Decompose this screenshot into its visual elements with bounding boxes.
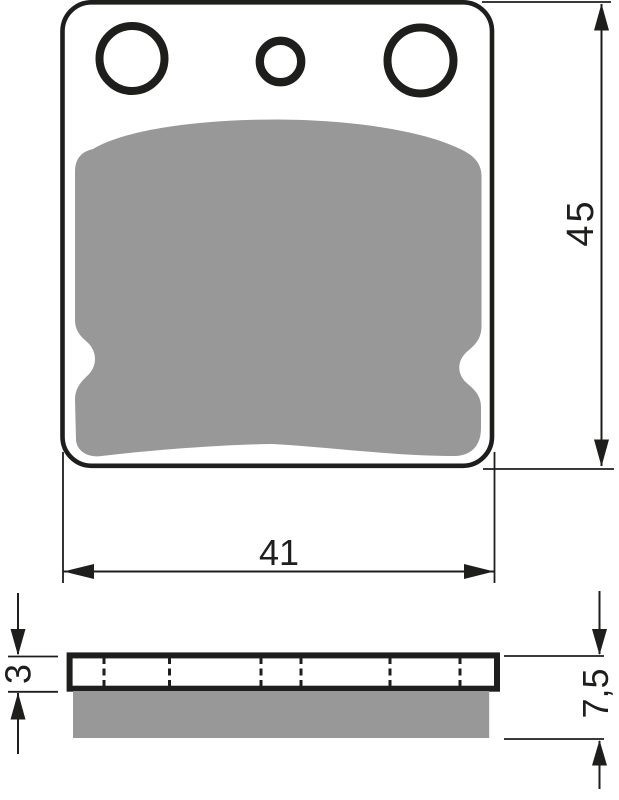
svg-text:3: 3 bbox=[0, 664, 39, 684]
svg-text:41: 41 bbox=[259, 532, 299, 573]
svg-text:7,5: 7,5 bbox=[575, 668, 616, 718]
svg-text:45: 45 bbox=[560, 198, 602, 246]
